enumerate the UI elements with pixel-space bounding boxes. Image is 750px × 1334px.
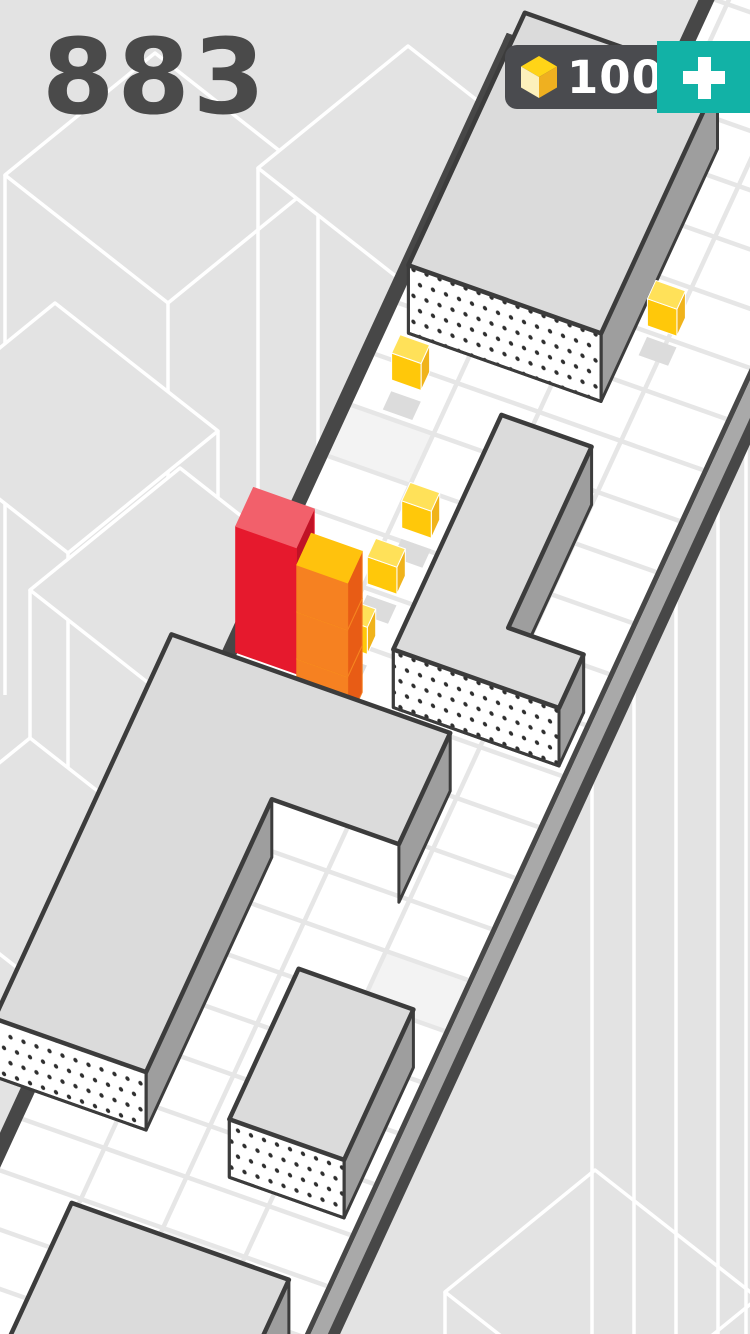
plus-icon	[657, 41, 750, 113]
coin-counter: 100	[505, 45, 657, 109]
coin-cube-icon	[518, 54, 560, 100]
coin-count: 100	[567, 55, 664, 100]
game-screen: 883 100	[0, 0, 750, 1334]
block-side	[236, 526, 297, 673]
collectible-cube	[402, 482, 440, 538]
score-label: 883	[42, 16, 268, 138]
game-scene[interactable]	[0, 0, 750, 1334]
collectible-cube	[392, 335, 430, 391]
add-coins-button[interactable]	[657, 41, 750, 113]
collectible-cube	[647, 280, 685, 336]
collectible-cube	[367, 538, 405, 594]
companion-cube	[297, 533, 362, 630]
